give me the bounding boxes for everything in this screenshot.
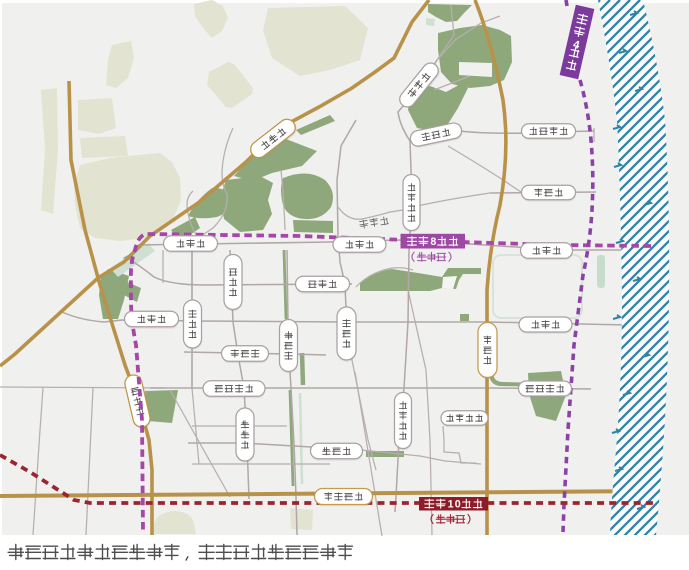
svg-text:0: 0 [455,498,461,510]
svg-text:1: 1 [448,498,454,510]
svg-text:8: 8 [430,236,436,248]
